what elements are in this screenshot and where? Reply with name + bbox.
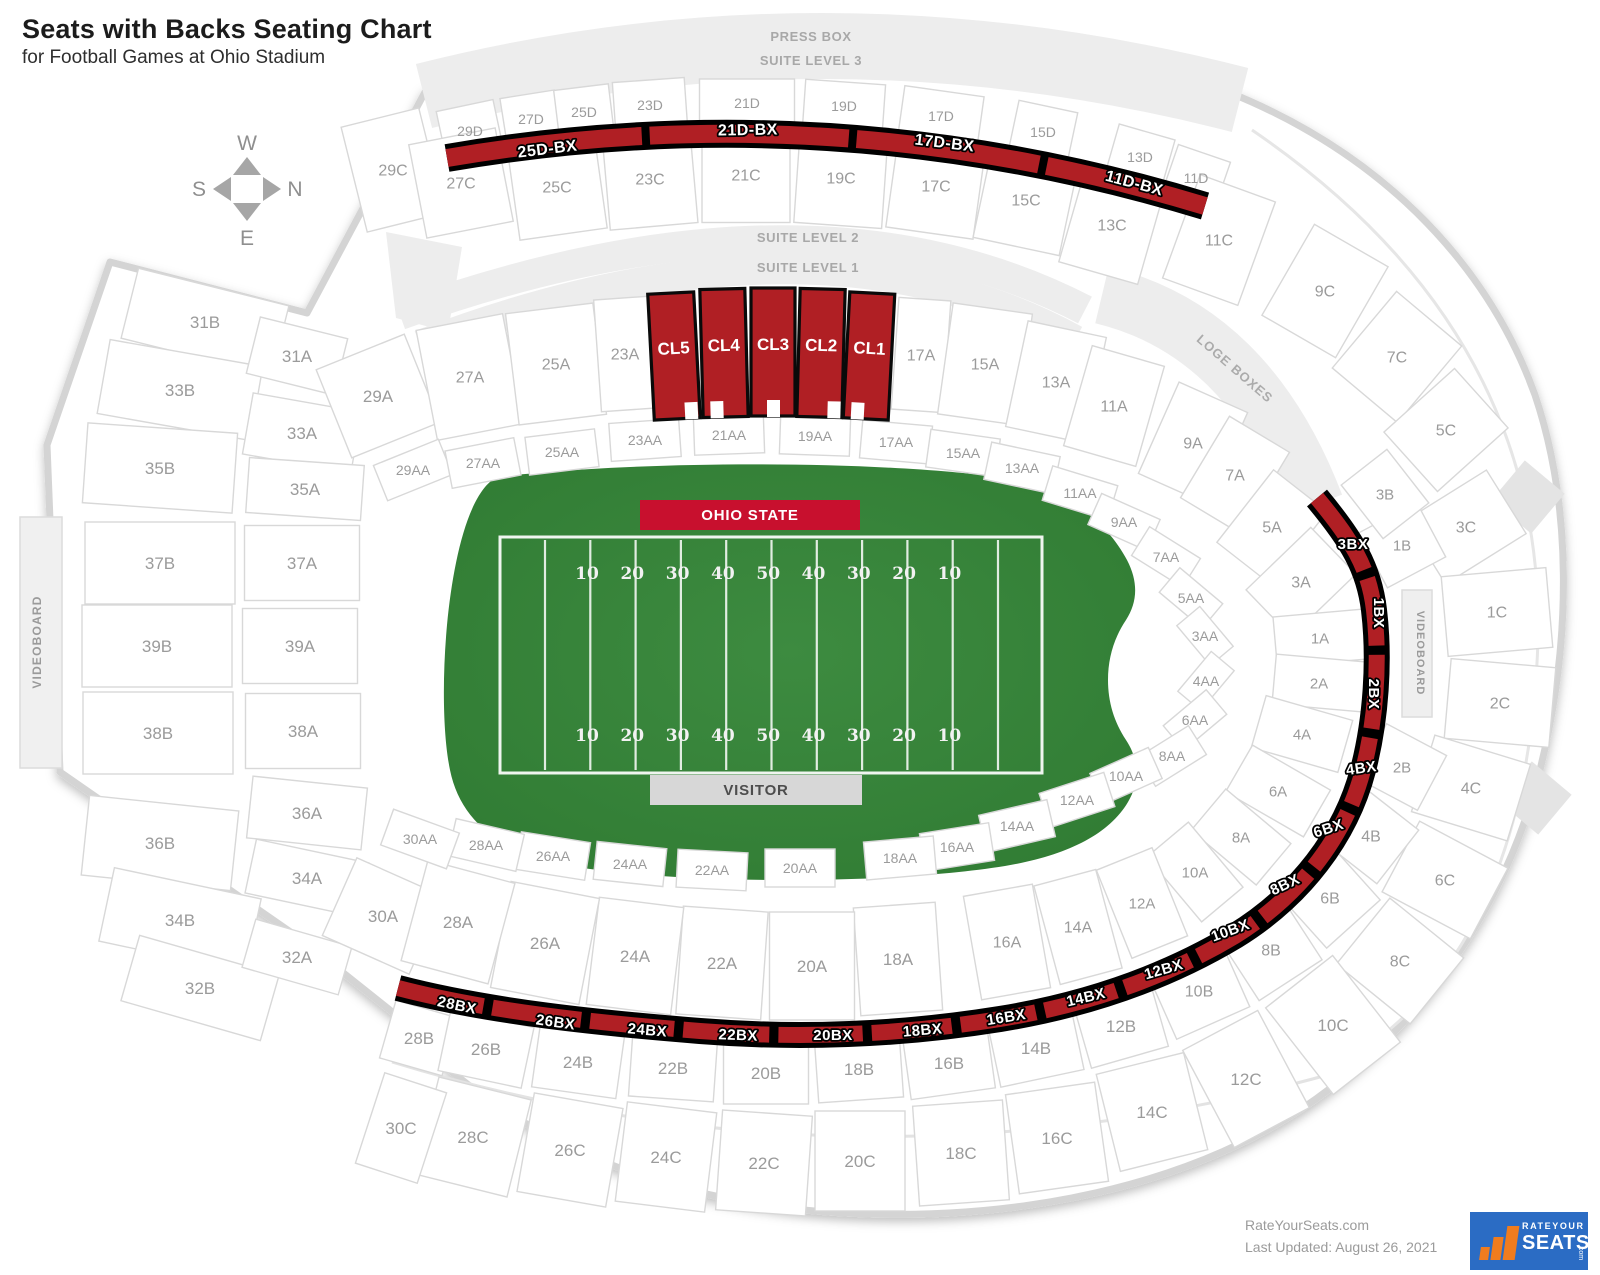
section-label-18aa[interactable]: 18AA <box>883 850 918 866</box>
section-label-17d[interactable]: 17D <box>928 108 954 124</box>
section-label-23a[interactable]: 23A <box>611 347 640 364</box>
logo-text-com: .com <box>1577 1245 1584 1260</box>
section-label-3b[interactable]: 3B <box>1376 486 1394 503</box>
section-label-23aa[interactable]: 23AA <box>628 432 663 448</box>
section-label-cl4[interactable]: CL4 <box>707 336 740 356</box>
section-label-10aa[interactable]: 10AA <box>1109 768 1144 784</box>
suite-level-1-label: SUITE LEVEL 1 <box>757 260 859 275</box>
section-label-17a[interactable]: 17A <box>907 348 936 365</box>
section-label-8b[interactable]: 8B <box>1261 943 1281 960</box>
section-label-1a[interactable]: 1A <box>1311 630 1329 647</box>
section-label-cl5[interactable]: CL5 <box>657 338 690 359</box>
section-label-3a[interactable]: 3A <box>1291 575 1311 592</box>
section-label-36b[interactable]: 36B <box>145 834 175 853</box>
yard-number-top: 10 <box>575 564 599 584</box>
section-label-23c[interactable]: 23C <box>635 172 664 189</box>
section-cl3[interactable]: CL3 <box>751 288 795 417</box>
yard-number-top: 30 <box>666 564 690 584</box>
press-box-label: PRESS BOX <box>770 29 851 44</box>
section-cl1[interactable]: CL1 <box>843 292 895 421</box>
section-label-cl2[interactable]: CL2 <box>805 336 838 356</box>
section-label-24b[interactable]: 24B <box>563 1053 593 1072</box>
yard-number-bottom: 30 <box>847 726 871 746</box>
section-label-22c[interactable]: 22C <box>748 1154 779 1173</box>
section-label-14aa[interactable]: 14AA <box>1000 818 1035 834</box>
compass-south: S <box>192 178 206 201</box>
section-label-32b[interactable]: 32B <box>185 979 215 998</box>
section-label-1bx[interactable]: 1BX <box>1370 598 1387 629</box>
suite-level-3-label: SUITE LEVEL 3 <box>760 53 862 68</box>
section-label-22a[interactable]: 22A <box>707 954 738 973</box>
section-label-16a[interactable]: 16A <box>993 935 1022 952</box>
club-sections: CL5CL4CL3CL2CL1 <box>648 288 895 421</box>
section-label-4aa[interactable]: 4AA <box>1193 673 1220 689</box>
home-endzone-label: OHIO STATE <box>701 507 798 524</box>
credit-updated: Last Updated: August 26, 2021 <box>1245 1236 1437 1258</box>
yard-number-bottom: 40 <box>711 726 735 746</box>
section-label-cl1[interactable]: CL1 <box>853 338 886 359</box>
section-label-9a[interactable]: 9A <box>1183 436 1203 453</box>
section-label-38b[interactable]: 38B <box>143 724 173 743</box>
section-label-29d[interactable]: 29D <box>457 123 483 139</box>
logo-text-top: RATEYOUR <box>1522 1221 1590 1231</box>
section-label-5aa[interactable]: 5AA <box>1178 590 1205 606</box>
section-label-9c[interactable]: 9C <box>1315 284 1335 301</box>
club-notch <box>767 400 780 417</box>
page-subtitle: for Football Games at Ohio Stadium <box>22 47 432 69</box>
section-label-19d[interactable]: 19D <box>831 98 857 114</box>
club-notch <box>851 402 865 420</box>
section-label-11c[interactable]: 11C <box>1205 233 1233 250</box>
compass-north: N <box>287 178 302 201</box>
section-label-7a[interactable]: 7A <box>1225 468 1245 485</box>
section-label-14c[interactable]: 14C <box>1136 1103 1167 1122</box>
section-label-21aa[interactable]: 21AA <box>712 427 747 443</box>
section-label-5c[interactable]: 5C <box>1436 423 1456 440</box>
section-label-12c[interactable]: 12C <box>1230 1070 1261 1089</box>
section-label-39b[interactable]: 39B <box>142 637 172 656</box>
section-label-7aa[interactable]: 7AA <box>1153 549 1180 565</box>
section-label-14b[interactable]: 14B <box>1021 1039 1051 1058</box>
rateyourseats-logo[interactable]: RATEYOUR SEATS .com <box>1470 1212 1588 1270</box>
section-label-26aa[interactable]: 26AA <box>536 848 571 864</box>
section-label-20bx[interactable]: 20BX <box>813 1027 853 1044</box>
section-label-2a[interactable]: 2A <box>1310 675 1328 692</box>
section-label-20b[interactable]: 20B <box>751 1064 781 1083</box>
section-label-24a[interactable]: 24A <box>620 947 651 966</box>
club-notch <box>710 401 723 418</box>
yard-number-top: 20 <box>892 564 916 584</box>
yard-number-top: 40 <box>802 564 826 584</box>
section-label-20a[interactable]: 20A <box>797 957 828 976</box>
section-label-24bx[interactable]: 24BX <box>627 1020 668 1040</box>
section-label-cl3[interactable]: CL3 <box>757 335 789 354</box>
section-label-13d[interactable]: 13D <box>1127 149 1153 165</box>
section-label-22aa[interactable]: 22AA <box>695 862 730 878</box>
credit-block: RateYourSeats.com Last Updated: August 2… <box>1245 1214 1437 1258</box>
stadium-map: PRESS BOXSUITE LEVEL 3SUITE LEVEL 2SUITE… <box>0 0 1600 1275</box>
section-label-2c[interactable]: 2C <box>1490 696 1510 713</box>
section-label-30c[interactable]: 30C <box>385 1119 416 1138</box>
section-label-18c[interactable]: 18C <box>945 1144 976 1163</box>
section-label-28c[interactable]: 28C <box>457 1128 488 1147</box>
section-label-37a[interactable]: 37A <box>287 554 318 573</box>
section-label-1c[interactable]: 1C <box>1487 605 1507 622</box>
section-label-33b[interactable]: 33B <box>165 381 195 400</box>
section-cl5[interactable]: CL5 <box>648 292 701 421</box>
section-label-18b[interactable]: 18B <box>844 1060 874 1079</box>
section-label-13aa[interactable]: 13AA <box>1005 460 1040 476</box>
section-label-28aa[interactable]: 28AA <box>469 837 504 853</box>
credit-site[interactable]: RateYourSeats.com <box>1245 1214 1437 1236</box>
section-label-26a[interactable]: 26A <box>530 934 561 953</box>
section-label-1b[interactable]: 1B <box>1393 537 1411 554</box>
seating-chart-page: PRESS BOXSUITE LEVEL 3SUITE LEVEL 2SUITE… <box>0 0 1600 1275</box>
section-label-7c[interactable]: 7C <box>1387 350 1407 367</box>
club-notch <box>827 401 840 418</box>
section-label-6a[interactable]: 6A <box>1269 783 1287 800</box>
section-label-24aa[interactable]: 24AA <box>613 856 648 872</box>
section-label-6b[interactable]: 6B <box>1320 891 1340 908</box>
section-label-16c[interactable]: 16C <box>1041 1129 1072 1148</box>
suite-level-2-label: SUITE LEVEL 2 <box>757 230 859 245</box>
section-label-15a[interactable]: 15A <box>971 357 1000 374</box>
videoboard-left-label: VIDEOBOARD <box>30 595 44 688</box>
section-label-20c[interactable]: 20C <box>844 1152 875 1171</box>
compass-west: W <box>237 132 257 155</box>
section-label-22bx[interactable]: 22BX <box>718 1026 758 1044</box>
section-label-17aa[interactable]: 17AA <box>879 434 914 450</box>
section-label-4c[interactable]: 4C <box>1461 781 1481 798</box>
videoboard-right-label: VIDEOBOARD <box>1414 611 1426 696</box>
section-label-37b[interactable]: 37B <box>145 554 175 573</box>
section-label-10b[interactable]: 10B <box>1185 984 1213 1001</box>
section-label-12aa[interactable]: 12AA <box>1060 792 1095 808</box>
section-label-8c[interactable]: 8C <box>1390 954 1410 971</box>
section-cl2[interactable]: CL2 <box>797 288 845 418</box>
section-label-25d[interactable]: 25D <box>571 104 597 120</box>
section-label-3c[interactable]: 3C <box>1456 520 1476 537</box>
club-notch <box>684 402 698 420</box>
section-label-3bx[interactable]: 3BX <box>1338 536 1369 553</box>
page-header: Seats with Backs Seating Chart for Footb… <box>22 14 432 69</box>
section-label-21d-bx[interactable]: 21D-BX <box>718 121 778 139</box>
section-label-26b[interactable]: 26B <box>471 1040 501 1059</box>
section-label-18bx[interactable]: 18BX <box>902 1020 943 1040</box>
section-label-32a[interactable]: 32A <box>282 948 313 967</box>
section-label-24c[interactable]: 24C <box>650 1148 681 1167</box>
section-label-30a[interactable]: 30A <box>368 907 399 926</box>
section-label-23d[interactable]: 23D <box>637 97 663 113</box>
section-label-11aa[interactable]: 11AA <box>1063 485 1097 501</box>
section-label-34b[interactable]: 34B <box>165 911 195 930</box>
yard-number-top: 20 <box>620 564 644 584</box>
section-label-8aa[interactable]: 8AA <box>1159 748 1186 764</box>
section-label-4a[interactable]: 4A <box>1293 726 1311 743</box>
section-label-14a[interactable]: 14A <box>1064 920 1093 937</box>
yard-number-top: 30 <box>847 564 871 584</box>
section-label-15aa[interactable]: 15AA <box>946 445 981 461</box>
section-label-3aa[interactable]: 3AA <box>1192 628 1219 644</box>
section-label-16aa[interactable]: 16AA <box>940 839 975 855</box>
section-label-19aa[interactable]: 19AA <box>798 428 833 444</box>
section-label-21c[interactable]: 21C <box>731 168 760 185</box>
section-label-33a[interactable]: 33A <box>287 424 318 443</box>
section-label-11d[interactable]: 11D <box>1184 170 1209 186</box>
section-label-27aa[interactable]: 27AA <box>466 455 501 471</box>
section-label-2bx[interactable]: 2BX <box>1365 679 1382 710</box>
yard-number-top: 50 <box>756 564 780 584</box>
section-label-29a[interactable]: 29A <box>363 387 394 406</box>
section-label-29aa[interactable]: 29AA <box>396 462 431 478</box>
section-label-19c[interactable]: 19C <box>826 171 855 188</box>
yard-number-bottom: 20 <box>892 726 916 746</box>
section-label-31a[interactable]: 31A <box>282 347 313 366</box>
section-label-15c[interactable]: 15C <box>1011 193 1040 210</box>
yard-number-bottom: 20 <box>620 726 644 746</box>
section-label-34a[interactable]: 34A <box>292 869 323 888</box>
section-label-2b[interactable]: 2B <box>1393 759 1411 776</box>
yard-number-bottom: 40 <box>802 726 826 746</box>
section-label-8a[interactable]: 8A <box>1232 829 1250 846</box>
section-label-21d[interactable]: 21D <box>734 95 760 111</box>
section-label-35b[interactable]: 35B <box>145 459 175 478</box>
section-label-6c[interactable]: 6C <box>1435 873 1455 890</box>
section-label-5a[interactable]: 5A <box>1262 520 1282 537</box>
section-label-10a[interactable]: 10A <box>1182 864 1209 881</box>
section-label-9aa[interactable]: 9AA <box>1111 514 1138 530</box>
yard-number-bottom: 50 <box>756 726 780 746</box>
section-label-6aa[interactable]: 6AA <box>1182 712 1209 728</box>
section-label-38a[interactable]: 38A <box>288 722 319 741</box>
yard-number-bottom: 10 <box>575 726 599 746</box>
visitor-endzone-label: VISITOR <box>723 782 788 799</box>
section-label-11a[interactable]: 11A <box>1100 399 1128 416</box>
section-label-16b[interactable]: 16B <box>934 1054 964 1073</box>
section-label-22b[interactable]: 22B <box>658 1059 688 1078</box>
page-title: Seats with Backs Seating Chart <box>22 14 432 45</box>
section-label-13a[interactable]: 13A <box>1042 375 1071 392</box>
yard-number-bottom: 10 <box>938 726 962 746</box>
compass-east: E <box>240 227 254 250</box>
section-label-25a[interactable]: 25A <box>542 357 571 374</box>
section-label-13c[interactable]: 13C <box>1097 218 1126 235</box>
section-label-29c[interactable]: 29C <box>378 163 407 180</box>
section-label-30aa[interactable]: 30AA <box>403 831 438 847</box>
yard-number-bottom: 30 <box>666 726 690 746</box>
section-label-17c[interactable]: 17C <box>921 179 950 196</box>
section-label-20aa[interactable]: 20AA <box>783 860 818 876</box>
section-label-10c[interactable]: 10C <box>1317 1016 1348 1035</box>
section-label-12b[interactable]: 12B <box>1106 1017 1136 1036</box>
section-label-28b[interactable]: 28B <box>404 1029 434 1048</box>
compass-icon: WESN <box>192 132 303 250</box>
section-label-36a[interactable]: 36A <box>292 804 323 823</box>
section-label-35a[interactable]: 35A <box>290 480 321 499</box>
section-cl4[interactable]: CL4 <box>700 288 748 418</box>
section-label-18a[interactable]: 18A <box>883 950 914 969</box>
section-label-27a[interactable]: 27A <box>456 370 485 387</box>
yard-number-top: 40 <box>711 564 735 584</box>
section-label-39a[interactable]: 39A <box>285 637 316 656</box>
yard-number-top: 10 <box>938 564 962 584</box>
section-label-27d[interactable]: 27D <box>518 111 544 127</box>
section-label-26c[interactable]: 26C <box>554 1141 585 1160</box>
section-label-15d[interactable]: 15D <box>1030 124 1056 140</box>
section-label-28a[interactable]: 28A <box>443 913 474 932</box>
logo-barchart-icon <box>1480 1224 1520 1260</box>
section-label-27c[interactable]: 27C <box>446 176 475 193</box>
section-label-25aa[interactable]: 25AA <box>545 444 580 460</box>
section-label-4b[interactable]: 4B <box>1361 829 1381 846</box>
section-label-12a[interactable]: 12A <box>1129 895 1156 912</box>
section-label-25c[interactable]: 25C <box>542 180 571 197</box>
section-label-31b[interactable]: 31B <box>190 313 220 332</box>
